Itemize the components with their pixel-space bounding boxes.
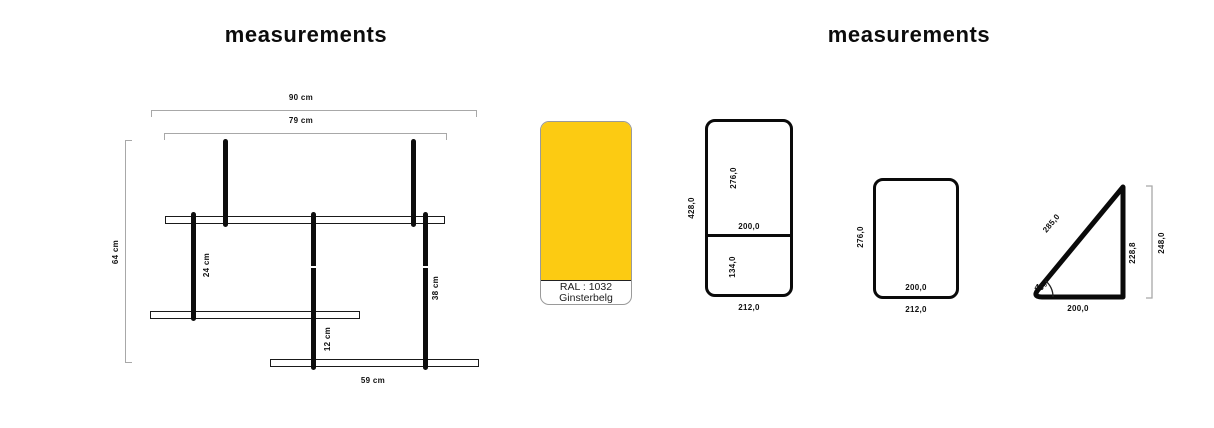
triangle-drawing: 45° 285,0 200,0 228,8 248,0 — [1015, 175, 1185, 325]
shelf-board-bottom — [270, 359, 479, 367]
panel-plain — [873, 178, 959, 299]
color-swatch-card: RAL : 1032 Ginsterbelg — [540, 121, 632, 305]
panel-divided — [705, 119, 793, 297]
panel-divided-base-width: 212,0 — [738, 304, 760, 312]
measurement-sheet: measurements 90 cm 79 cm 64 cm 24 cm 12 … — [0, 0, 1214, 428]
shelf-board-top — [165, 216, 445, 224]
panel-plain-height: 276,0 — [857, 226, 865, 248]
rod-ceiling-left — [223, 139, 228, 227]
dim-label-90cm: 90 cm — [289, 94, 313, 102]
triangle-base-label: 200,0 — [1067, 304, 1089, 313]
color-swatch-area — [541, 122, 631, 281]
rod-12cm — [311, 212, 316, 370]
panel-divided-upper-height: 276,0 — [730, 167, 738, 189]
rod-24cm — [191, 212, 196, 321]
dim-label-64cm: 64 cm — [112, 240, 120, 264]
panel-plain-inner-width: 200,0 — [905, 284, 927, 292]
triangle-hypotenuse-label: 285,0 — [1041, 212, 1062, 234]
dim-bracket-64cm — [125, 140, 132, 363]
dim-label-12cm: 12 cm — [324, 327, 332, 351]
dim-label-79cm: 79 cm — [289, 117, 313, 125]
dim-label-38cm: 38 cm — [432, 276, 440, 300]
rod-ceiling-right — [411, 139, 416, 227]
panel-divided-inner-width: 200,0 — [738, 223, 760, 231]
triangle-side-label: 228,8 — [1128, 242, 1137, 264]
panel-divided-overall-height: 428,0 — [688, 197, 696, 219]
dim-bracket-248 — [1146, 186, 1152, 298]
triangle-angle-label: 45° — [1035, 283, 1048, 292]
rod-38cm — [423, 212, 428, 370]
panel-divided-divider — [706, 234, 792, 237]
rod-joint-notch-middle — [311, 266, 316, 268]
shelf-board-middle — [150, 311, 360, 319]
triangle-shape — [1036, 187, 1123, 297]
dim-bracket-79cm — [164, 133, 447, 140]
panel-plain-base-width: 212,0 — [905, 306, 927, 314]
dim-label-24cm: 24 cm — [203, 253, 211, 277]
dim-label-59cm: 59 cm — [361, 377, 385, 385]
left-title: measurements — [225, 22, 388, 48]
triangle-overall-height-label: 248,0 — [1157, 232, 1166, 254]
right-title: measurements — [828, 22, 991, 48]
ral-name: Ginsterbelg — [541, 293, 631, 304]
panel-divided-lower-height: 134,0 — [729, 256, 737, 278]
rod-joint-notch-right — [423, 266, 428, 268]
dim-bracket-90cm — [151, 110, 477, 117]
